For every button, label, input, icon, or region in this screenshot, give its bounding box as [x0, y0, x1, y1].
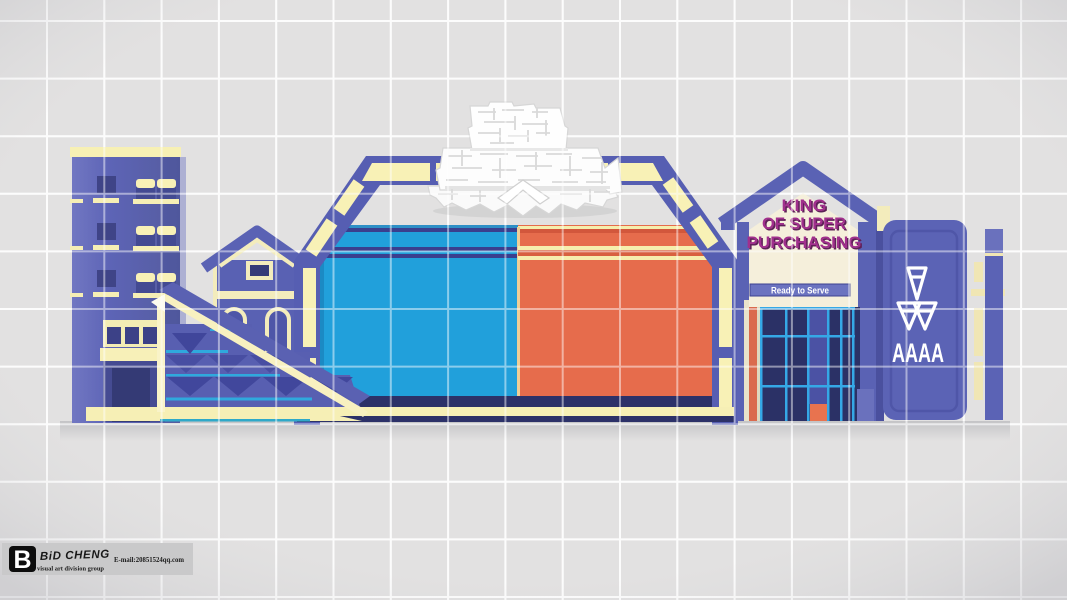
svg-text:B: B	[13, 546, 31, 574]
svg-text:visual art division group: visual art division group	[37, 566, 104, 573]
svg-text:BiD CHENG: BiD CHENG	[40, 549, 110, 563]
svg-text:E-mail:20851524qq.com: E-mail:20851524qq.com	[114, 555, 185, 564]
